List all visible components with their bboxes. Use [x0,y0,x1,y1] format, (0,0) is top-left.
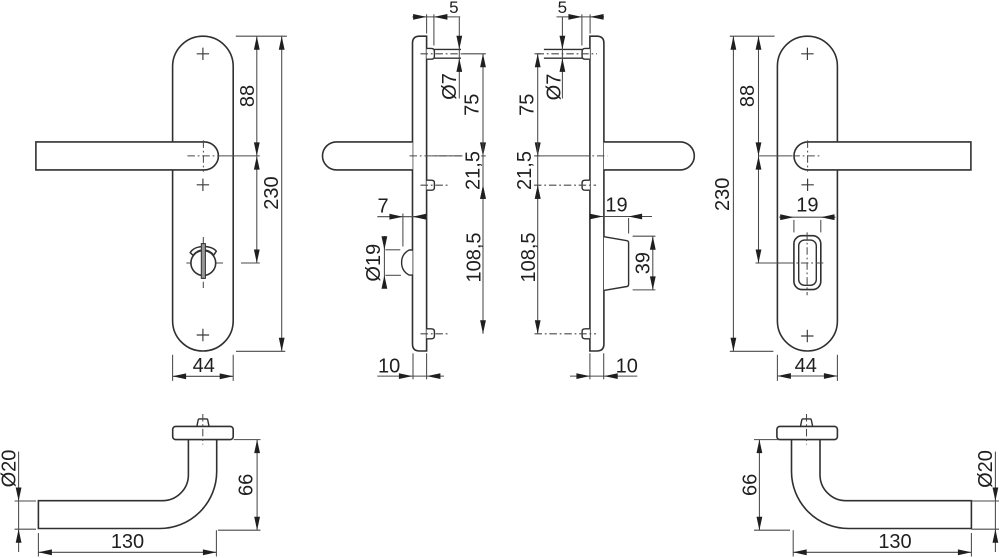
svg-text:44: 44 [795,355,817,377]
svg-text:5: 5 [558,0,567,17]
svg-text:19: 19 [796,195,818,217]
svg-text:88: 88 [237,85,259,107]
svg-text:66: 66 [236,474,258,496]
svg-text:130: 130 [111,531,144,553]
svg-text:10: 10 [378,355,400,377]
svg-text:39: 39 [633,252,655,274]
svg-text:Ø20: Ø20 [975,450,997,488]
svg-text:130: 130 [878,531,911,553]
svg-text:21,5: 21,5 [463,151,485,190]
svg-text:230: 230 [261,176,283,209]
svg-text:Ø7: Ø7 [439,73,461,100]
svg-text:Ø7: Ø7 [544,74,566,101]
svg-text:230: 230 [712,178,734,211]
svg-text:108,5: 108,5 [518,232,540,282]
svg-text:21,5: 21,5 [514,151,536,190]
svg-text:66: 66 [740,474,762,496]
svg-text:Ø20: Ø20 [0,450,20,488]
svg-text:Ø19: Ø19 [363,244,385,282]
svg-text:10: 10 [616,355,638,377]
svg-text:44: 44 [193,355,215,377]
svg-text:5: 5 [449,0,458,17]
svg-text:88: 88 [737,85,759,107]
svg-text:108,5: 108,5 [464,232,486,282]
svg-text:75: 75 [517,94,539,116]
svg-text:75: 75 [462,94,484,116]
svg-text:7: 7 [378,195,389,217]
svg-text:19: 19 [605,195,627,217]
